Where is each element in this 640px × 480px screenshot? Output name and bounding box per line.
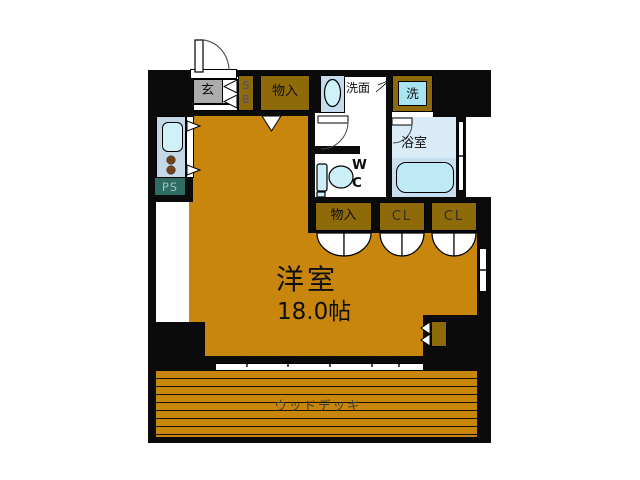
shoe-box-label: S B (238, 75, 254, 111)
main-room-size: 18.0帖 (277, 300, 351, 325)
floor-plan: 玄 S B 物入 洗面 洗 浴室 W C PS 物入 CL CL 洋室 18.0… (0, 0, 640, 480)
closet-right-label: CL (431, 202, 477, 231)
shoe-box-label-bottom: B (242, 93, 249, 107)
bathroom-label: 浴室 (401, 137, 427, 151)
toilet-icon (317, 164, 353, 197)
shoe-box-label-top: S (243, 79, 250, 93)
hall-storage-label: 物入 (260, 75, 310, 109)
pipe-space-label: PS (155, 178, 185, 195)
main-room-name: 洋室 (276, 265, 338, 296)
stove-burners-icon (167, 156, 176, 175)
kitchen-counter-arrows-icon (187, 121, 200, 175)
entrance-label: 玄 (193, 79, 222, 104)
hall-storage-door-icon (262, 116, 281, 131)
window-ticks (247, 156, 488, 367)
entrance-door-icon (195, 40, 229, 72)
shoe-box-door-icon (224, 80, 237, 108)
bifold-doors-icon (317, 233, 476, 256)
washstand-leader-lines (376, 80, 390, 92)
wc-label: W C (352, 157, 367, 192)
washbasin-icon (325, 80, 341, 107)
laundry-label: 洗 (392, 75, 433, 112)
lower-storage-label: 物入 (315, 202, 372, 231)
wc-label-c: C (352, 175, 367, 193)
corner-cabinet-door-icon (421, 322, 430, 346)
washroom-door-icon (318, 116, 348, 149)
closet-left-label: CL (379, 202, 425, 231)
wc-label-w: W (352, 157, 367, 175)
washstand-label: 洗面 (346, 82, 370, 95)
wood-deck-label: ウッドデッキ (156, 395, 480, 414)
